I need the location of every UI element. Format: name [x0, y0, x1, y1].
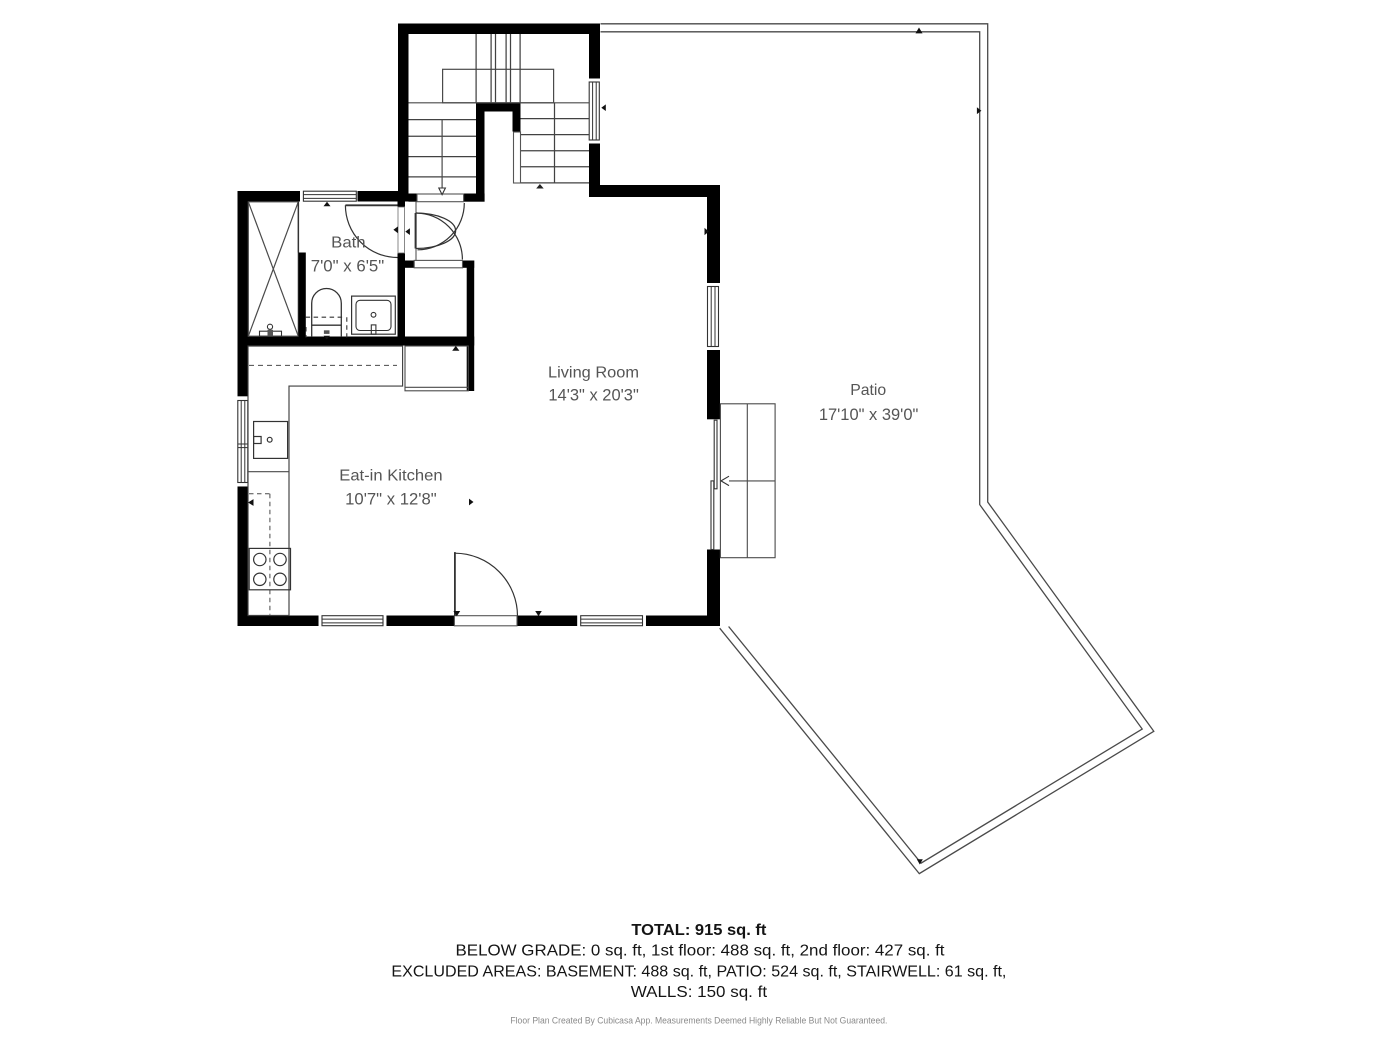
svg-text:Living Room: Living Room	[548, 365, 639, 382]
svg-text:EXCLUDED AREAS: BASEMENT: 488: EXCLUDED AREAS: BASEMENT: 488 sq. ft, PA…	[391, 963, 1006, 980]
svg-text:Bath: Bath	[331, 235, 366, 252]
svg-text:Patio: Patio	[850, 382, 886, 399]
svg-text:7'0" x 6'5": 7'0" x 6'5"	[311, 257, 385, 276]
svg-text:TOTAL: 915 sq. ft: TOTAL: 915 sq. ft	[631, 922, 767, 939]
svg-text:10'7" x 12'8": 10'7" x 12'8"	[345, 489, 437, 508]
svg-text:WALLS: 150 sq. ft: WALLS: 150 sq. ft	[631, 984, 768, 1001]
svg-text:Floor Plan Created By Cubicasa: Floor Plan Created By Cubicasa App. Meas…	[510, 1015, 887, 1025]
svg-text:BELOW GRADE: 0 sq. ft, 1st flo: BELOW GRADE: 0 sq. ft, 1st floor: 488 sq…	[456, 943, 946, 960]
svg-text:14'3" x 20'3": 14'3" x 20'3"	[548, 386, 639, 405]
svg-text:Eat-in Kitchen: Eat-in Kitchen	[339, 468, 442, 485]
svg-text:17'10" x 39'0": 17'10" x 39'0"	[819, 405, 919, 424]
